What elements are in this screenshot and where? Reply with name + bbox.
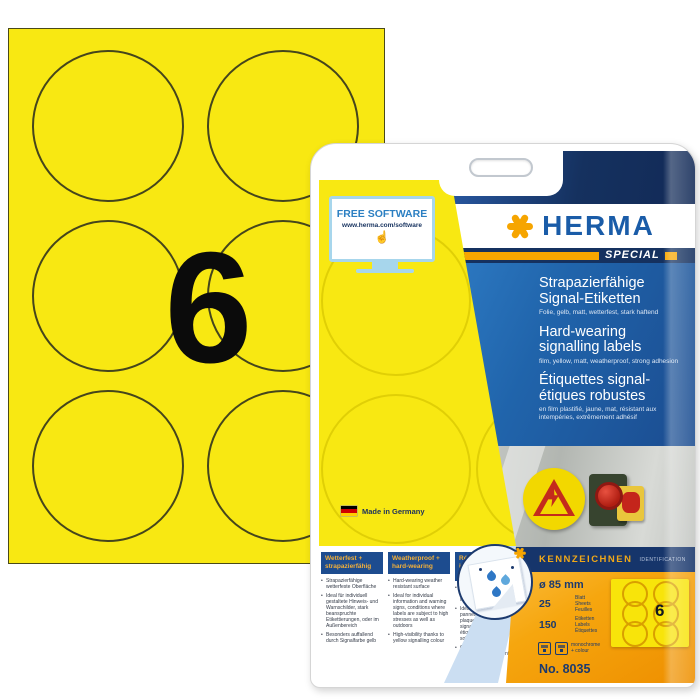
free-software-url: www.herma.com/software [332,222,432,229]
article-number: No. 8035 [539,662,590,676]
series-label: SPECIAL [605,249,660,261]
monitor-base [356,269,414,273]
spec-labels-units: Etiketten Labels Étiquettes [575,617,597,634]
brand-band: HERMA [439,204,695,248]
die-cut-circle [32,50,184,202]
monitor-icon: FREE SOFTWARE www.herma.com/software ☝ [329,196,435,262]
die-cut-circle [32,390,184,542]
weatherproof-mascot [457,544,533,620]
feature-bullet: Strapazierfähige wetterfeste Oberfläche [321,578,383,590]
print-note: monochrome + colour [571,642,600,654]
product-package: Wetterfest + strapazierfähig Strapazierf… [310,143,696,688]
labels-per-sheet-count: 6 [131,229,286,387]
package-fold-highlight [663,151,695,683]
feature-header-en: Weatherproof + hard-wearing [388,552,450,574]
hand-cursor-icon: ☝ [332,230,432,244]
feature-bullet: High-visibility thanks to yellow signall… [388,632,450,644]
brand-name: HERMA [542,210,655,242]
die-cut-circle [321,394,471,544]
free-software-title: FREE SOFTWARE [332,208,432,220]
feature-bullet: Ideal für individuell gestaltete Hinweis… [321,593,383,629]
sun-icon [514,547,526,559]
free-software-badge: FREE SOFTWARE www.herma.com/software ☝ [329,196,441,273]
emergency-stop-button [595,482,623,510]
printer-compatibility-icons [538,642,568,655]
spec-labels-value: 150 [539,619,557,631]
spec-diameter: ø 85 mm [539,579,584,591]
herma-asterisk-icon [507,213,533,239]
inkjet-printer-icon [538,642,551,655]
euro-slot-hole [469,158,533,177]
monitor-stand [372,262,398,269]
category-label-de: KENNZEICHNEN [539,554,632,565]
spec-sheets-value: 25 [539,598,551,610]
crumpled-label-icon [467,556,526,610]
made-in-germany: Made in Germany [341,506,425,516]
laser-printer-icon [555,642,568,655]
feature-bullet: Besonders auffallend durch Signalfarbe g… [321,632,383,644]
feature-bullet: Ideal for individual information and war… [388,593,450,629]
warning-label-photo [523,468,585,530]
feature-header-de: Wetterfest + strapazierfähig [321,552,383,574]
feature-column-de: Wetterfest + strapazierfähig Strapazierf… [321,552,383,647]
hang-tab [439,144,563,196]
german-flag-icon [341,506,357,516]
spec-sheets-units: Blatt Sheets Feuilles [575,596,592,613]
special-band: SPECIAL [439,248,695,263]
feature-bullet: Hard-wearing weather resistant surface [388,578,450,590]
made-in-germany-label: Made in Germany [362,507,425,516]
feature-column-en: Weatherproof + hard-wearing Hard-wearing… [388,552,450,647]
